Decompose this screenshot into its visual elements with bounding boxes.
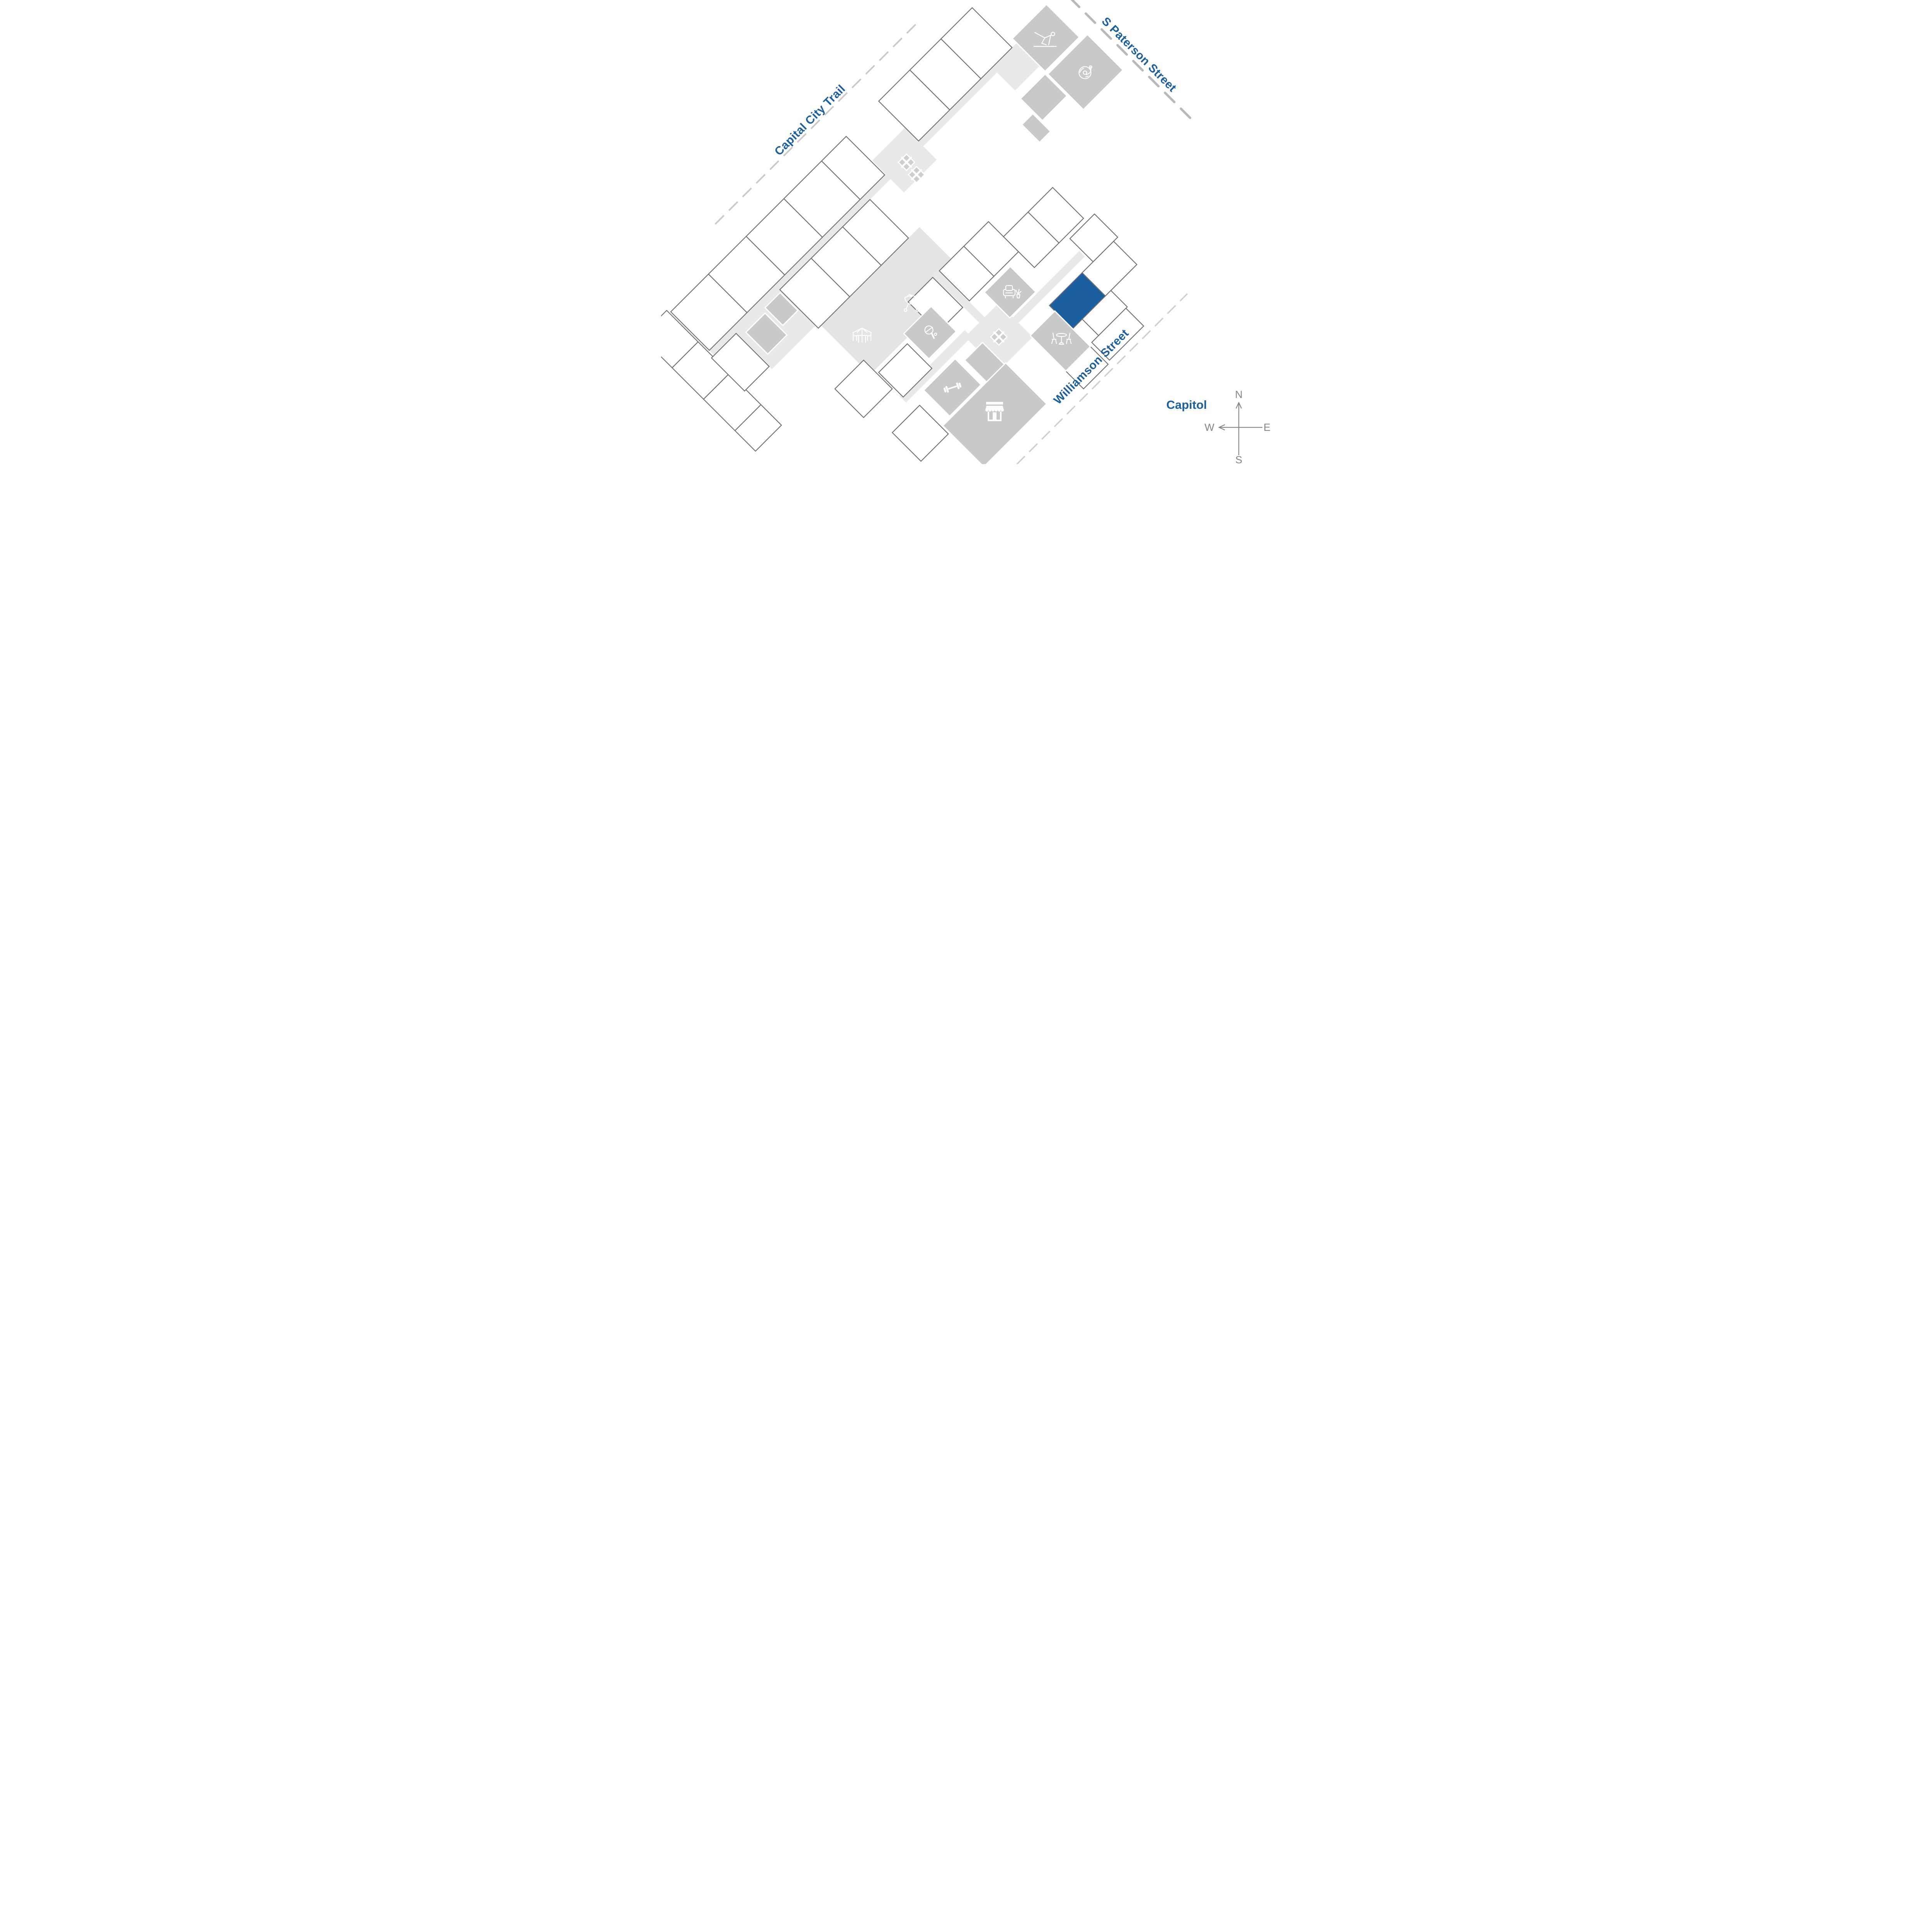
compass-n: N [1235,389,1243,400]
compass-west-arrow [1219,425,1262,430]
compass: N S W E [1204,389,1270,464]
unit [892,405,948,461]
capitol-label: Capitol [1166,398,1207,412]
compass-e: E [1264,422,1270,433]
compass-s: S [1235,454,1242,464]
compass-north-arrow [1236,403,1242,455]
amenity-room [1022,114,1051,142]
site-map: Capital City Trail S Paterson Street Wil… [661,0,1271,464]
compass-w: W [1204,422,1214,433]
